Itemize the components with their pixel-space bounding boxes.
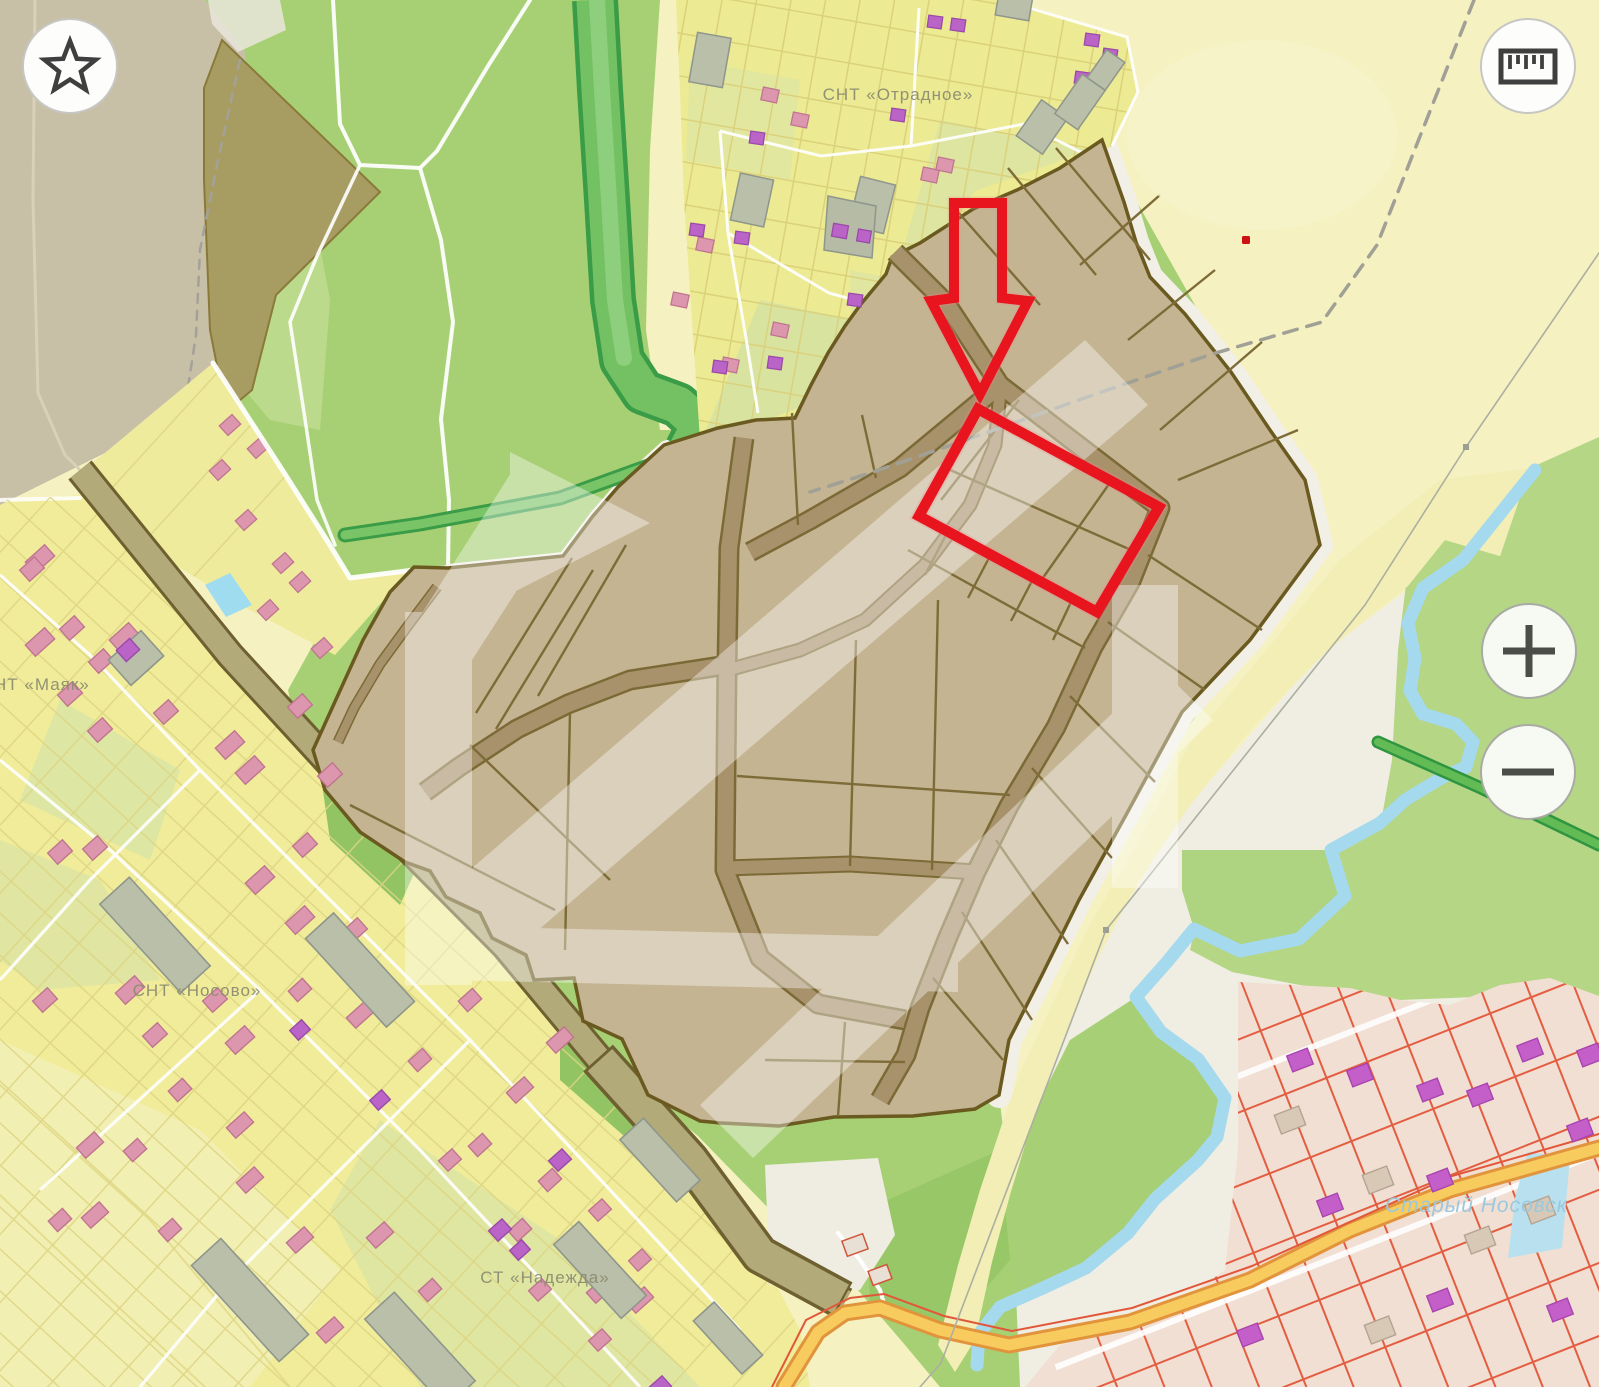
svg-text:СНТ «Носово»: СНТ «Носово» xyxy=(133,981,262,1000)
svg-text:СТ «Надежда»: СТ «Надежда» xyxy=(480,1268,609,1287)
svg-text:НТ «Маяк»: НТ «Маяк» xyxy=(0,675,90,694)
svg-text:СНТ «Отрадное»: СНТ «Отрадное» xyxy=(823,85,974,104)
svg-text:Старый Носовск: Старый Носовск xyxy=(1385,1194,1568,1217)
